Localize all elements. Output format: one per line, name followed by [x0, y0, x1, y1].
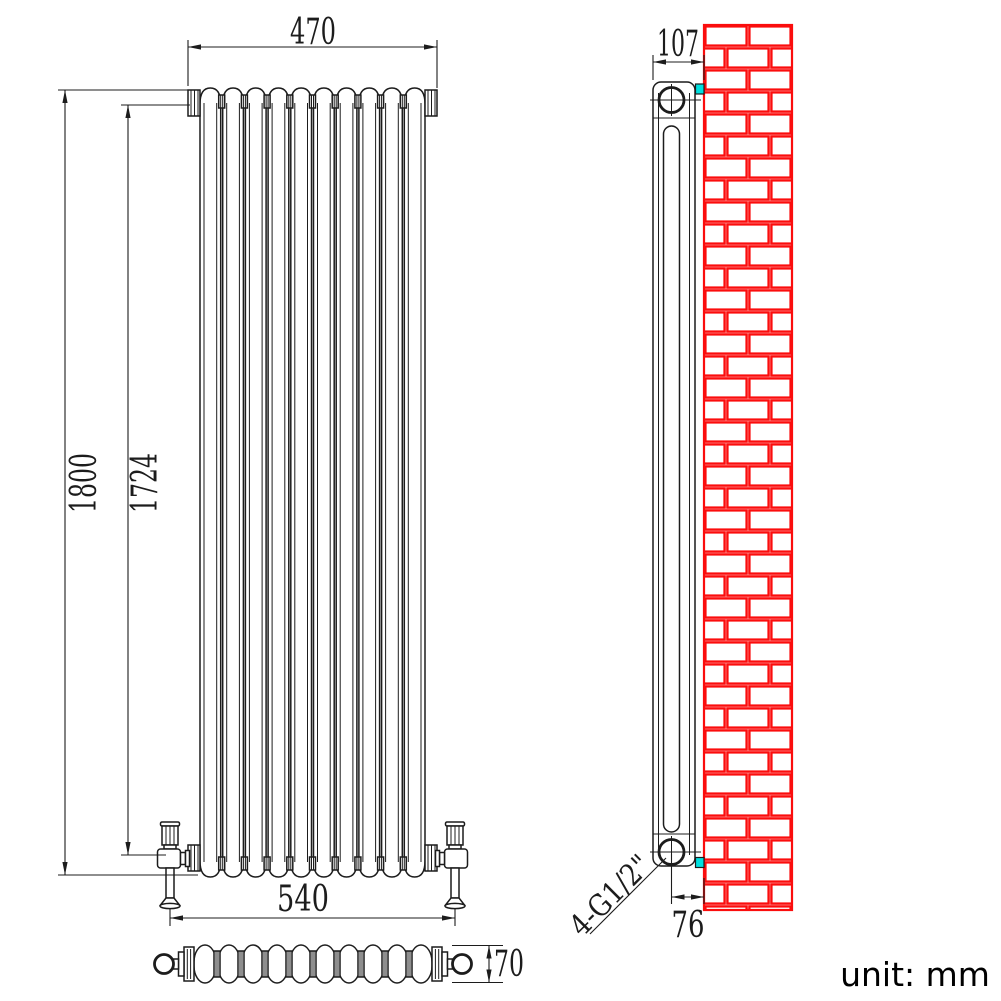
radiator-technical-drawing: 470 1800 1724 540 70: [0, 0, 1001, 1001]
column-oval: [410, 945, 432, 983]
column-collar: [310, 95, 316, 108]
column-collar: [332, 95, 338, 108]
end-cap-top-right: [425, 90, 437, 116]
column-collar: [286, 951, 292, 977]
plan-end-right: [432, 947, 472, 981]
radiator-valve-left: [158, 822, 190, 921]
column-collar: [310, 951, 316, 977]
valve-circle-left: [155, 955, 174, 974]
front-columns: [200, 88, 425, 877]
column-oval: [218, 945, 240, 983]
column-collar: [264, 857, 270, 870]
unit-label: unit: mm: [840, 955, 990, 994]
front-bottom-collars: [219, 857, 407, 870]
radiator-valve-right: [436, 822, 468, 921]
wall-bracket-bottom: [696, 858, 705, 868]
dim-label-1800: 1800: [64, 453, 105, 513]
column-collar: [238, 951, 244, 977]
column-collar: [219, 857, 225, 870]
column-collar: [332, 857, 338, 870]
column-tube: [268, 88, 289, 877]
column-tube: [314, 88, 335, 877]
column-collar: [214, 951, 220, 977]
column-slot: [664, 126, 680, 832]
column-collar: [241, 857, 247, 870]
dim-label-540: 540: [277, 879, 329, 920]
brick-wall: [704, 25, 792, 910]
column-collar: [264, 95, 270, 108]
column-collar: [400, 95, 406, 108]
column-collar: [382, 951, 388, 977]
column-oval: [338, 945, 360, 983]
column-collar: [358, 951, 364, 977]
dim-107: 107: [653, 24, 704, 80]
column-oval: [314, 945, 336, 983]
column-collar: [287, 857, 293, 870]
column-oval: [362, 945, 384, 983]
plan-view: [155, 945, 472, 983]
dim-470: 470: [188, 12, 437, 88]
column-tube: [223, 88, 244, 877]
column-tube: [245, 88, 266, 877]
column-oval: [386, 945, 408, 983]
plan-end-left: [155, 947, 195, 981]
column-tube: [336, 88, 357, 877]
column-tube: [291, 88, 312, 877]
wall-bracket-top: [696, 84, 705, 94]
column-collar: [287, 95, 293, 108]
column-oval: [194, 945, 216, 983]
side-view: [650, 25, 792, 910]
dim-label-107: 107: [657, 24, 699, 65]
column-tube: [359, 88, 380, 877]
end-cap-top-left: [188, 90, 200, 116]
plan-collars: [214, 951, 412, 977]
column-collar: [355, 857, 361, 870]
dim-label-1724: 1724: [125, 453, 166, 513]
connection-label: 4-G1/2": [563, 848, 658, 943]
column-collar: [241, 95, 247, 108]
front-view: [158, 88, 468, 921]
valve-circle-right: [453, 955, 472, 974]
column-oval: [242, 945, 264, 983]
dim-1724: 1724: [121, 105, 190, 855]
column-collar: [378, 95, 384, 108]
dim-540: 540: [170, 879, 455, 926]
column-collar: [219, 95, 225, 108]
column-collar: [378, 857, 384, 870]
column-oval: [266, 945, 288, 983]
column-collar: [262, 951, 268, 977]
radiator-technical-drawing-page: 470 1800 1724 540 70: [0, 0, 1001, 1001]
column-collar: [400, 857, 406, 870]
column-collar: [406, 951, 412, 977]
column-collar: [310, 857, 316, 870]
column-tube: [200, 88, 221, 877]
dim-label-76: 76: [672, 905, 705, 946]
column-tube: [404, 88, 425, 877]
column-collar: [334, 951, 340, 977]
dim-label-470: 470: [290, 12, 336, 53]
column-oval: [290, 945, 312, 983]
front-top-collars: [219, 95, 407, 108]
leader-connection: 4-G1/2": [563, 848, 666, 943]
dim-label-70: 70: [494, 944, 524, 985]
column-tube: [382, 88, 403, 877]
column-collar: [355, 95, 361, 108]
